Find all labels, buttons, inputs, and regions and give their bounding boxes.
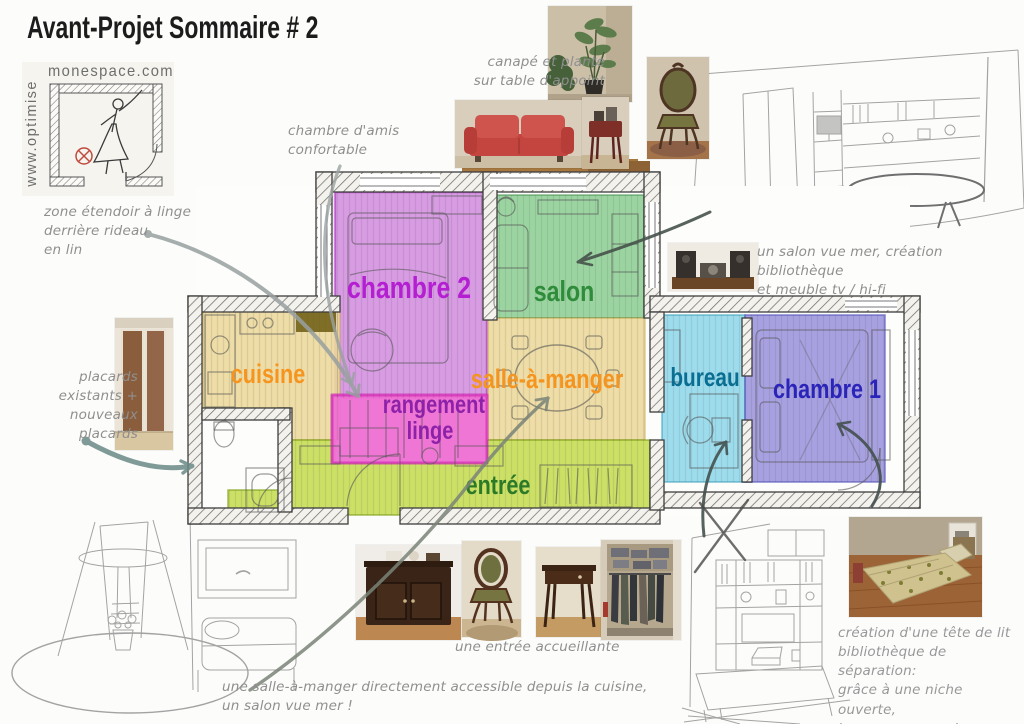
photo-side-table [582, 97, 629, 169]
photo-wardrobe [601, 540, 681, 640]
room-label-bureau: bureau [670, 362, 739, 393]
photo-bed [849, 517, 982, 617]
note-chambre-amis: chambre d'amis confortable [288, 122, 399, 160]
room-label-salon: salon [534, 276, 595, 309]
room-label-cuisine: cuisine [231, 359, 305, 390]
photo-red-sofa [455, 100, 586, 168]
photo-green-chair-top [647, 57, 709, 159]
note-tete-lit: création d'une tête de lit bibliothèque … [838, 624, 1023, 724]
note-salle-manger: une salle-à-manger directement accessibl… [222, 678, 652, 716]
room-label-entree: entrée [466, 470, 531, 501]
room-label-rangement-linge: rangement linge [383, 392, 477, 445]
note-zone-etendoir: zone étendoir à linge derrière rideau en… [44, 203, 191, 260]
room-label-chambre2: chambre 2 [347, 270, 471, 306]
room-label-chambre1: chambre 1 [773, 374, 881, 405]
note-canape: canapé et plante sur table d'appoint [425, 53, 605, 91]
note-entree-accueillante: une entrée accueillante [455, 638, 620, 657]
cuisine-appliance [296, 310, 336, 332]
photo-hifi [668, 243, 758, 291]
presentation-board: Avant-Projet Sommaire # 2 monespace.com … [0, 0, 1024, 724]
note-placards: placards existants + nouveaux placards [26, 368, 138, 445]
photo-cabinet [356, 545, 461, 640]
photo-green-chair-bottom [462, 541, 521, 637]
note-salon-vue-mer: un salon vue mer, création bibliothèque … [757, 243, 1024, 300]
photo-desk-table [536, 547, 602, 637]
room-label-salle-a-manger: salle-à-manger [471, 364, 623, 395]
